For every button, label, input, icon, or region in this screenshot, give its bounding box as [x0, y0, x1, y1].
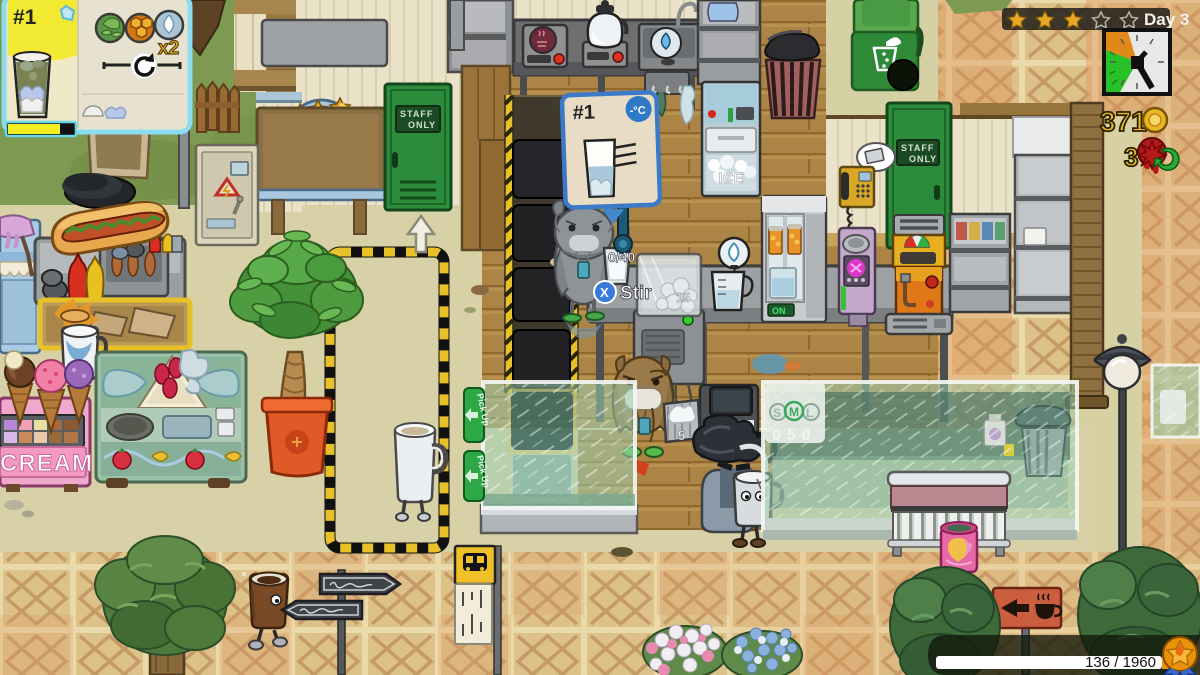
svg-text:ONLY: ONLY	[909, 154, 937, 164]
svg-text:0/40: 0/40	[608, 249, 635, 265]
svg-text:#1: #1	[13, 6, 37, 29]
svg-text:#1: #1	[572, 102, 595, 125]
svg-text:Day 3: Day 3	[1144, 10, 1189, 29]
svg-text:ON: ON	[772, 306, 786, 316]
svg-text:371: 371	[1100, 106, 1147, 137]
svg-text:15: 15	[676, 290, 690, 305]
svg-text:STAFF: STAFF	[400, 109, 433, 119]
svg-text:ONLY: ONLY	[408, 120, 436, 130]
svg-text:S: S	[773, 406, 781, 420]
svg-text:Stir: Stir	[620, 283, 652, 304]
svg-text:5: 5	[678, 428, 685, 443]
svg-text:L: L	[806, 406, 813, 420]
svg-text:-°C: -°C	[629, 105, 645, 118]
svg-text:STAFF: STAFF	[901, 143, 934, 153]
svg-text:3: 3	[1124, 142, 1138, 172]
svg-text:X: X	[600, 285, 609, 300]
svg-text:CREAM: CREAM	[0, 450, 93, 477]
svg-text:ICE: ICE	[718, 170, 743, 187]
svg-text:136 / 1960: 136 / 1960	[1085, 654, 1156, 671]
svg-text:050: 050	[772, 427, 817, 444]
svg-text:x2: x2	[158, 38, 179, 59]
svg-text:M: M	[789, 405, 799, 419]
